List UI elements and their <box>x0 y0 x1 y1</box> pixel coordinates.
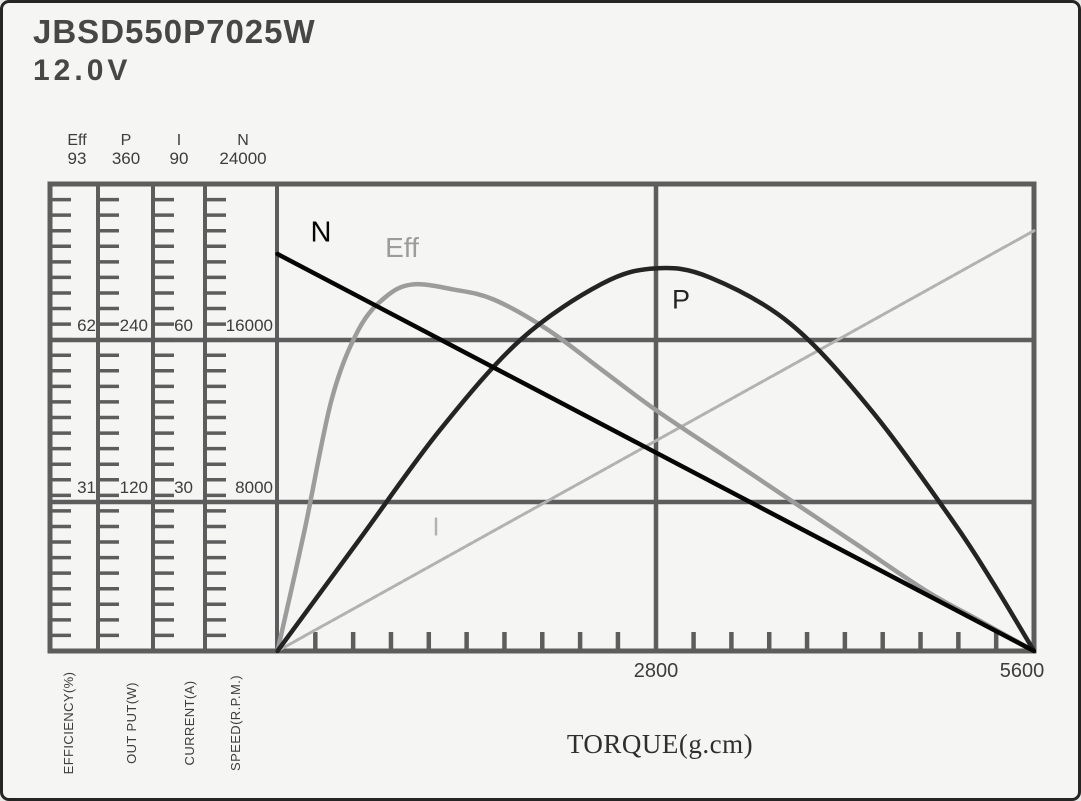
x-axis-title: TORQUE(g.cm) <box>567 729 753 760</box>
curve-label-p: P <box>672 285 690 316</box>
axis-p-letter: P <box>121 132 132 150</box>
x-tick-5600: 5600 <box>1000 660 1045 683</box>
axis-i-name: CURRENT(A) <box>182 653 198 793</box>
axis-n-tick-16000: 16000 <box>208 316 273 336</box>
curve-label-i: I <box>432 512 439 543</box>
motor-performance-chart-page: JBSD550P7025W 12.0V Eff 93 P 360 I 90 N … <box>0 0 1081 801</box>
axis-n-tick-8000: 8000 <box>208 478 273 498</box>
axis-i-letter: I <box>177 132 181 150</box>
axis-eff-tick-31: 31 <box>53 478 96 498</box>
axis-eff-tick-62: 62 <box>53 316 96 336</box>
axis-i-tick-60: 60 <box>153 316 193 336</box>
curve-label-n: N <box>311 217 332 250</box>
axis-n-letter: N <box>237 132 249 150</box>
x-tick-2800: 2800 <box>634 660 679 683</box>
axis-eff-name: EFFICIENCY(%) <box>61 653 77 793</box>
curve-label-eff: Eff <box>385 232 419 264</box>
axis-p-name: OUT PUT(W) <box>124 653 140 793</box>
axis-eff-max: 93 <box>68 149 87 169</box>
axis-p-tick-240: 240 <box>103 316 148 336</box>
axis-i-max: 90 <box>170 149 189 169</box>
axis-p-max: 360 <box>112 149 140 169</box>
chart-canvas <box>3 3 1081 801</box>
axis-n-max: 24000 <box>219 149 266 169</box>
axis-i-tick-30: 30 <box>153 478 193 498</box>
axis-eff-letter: Eff <box>67 132 86 150</box>
axis-n-name: SPEED(R.P.M.) <box>228 653 244 793</box>
axis-p-tick-120: 120 <box>103 478 148 498</box>
